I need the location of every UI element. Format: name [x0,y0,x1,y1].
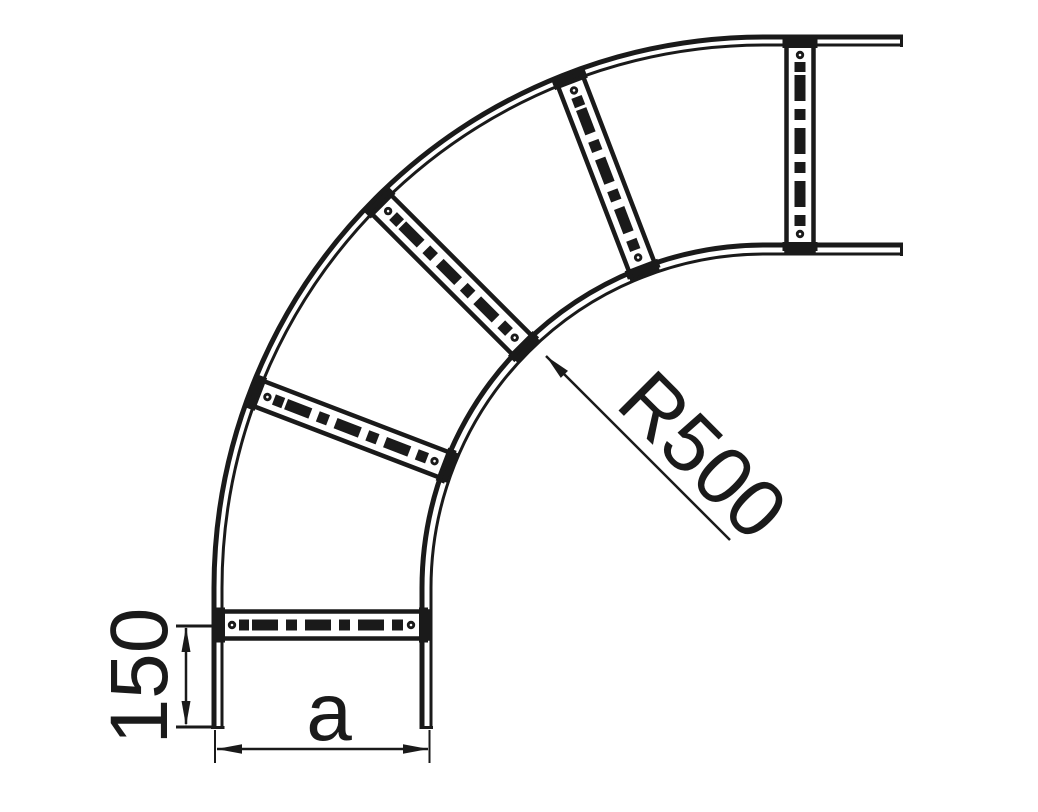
rung-offset-dimension: 150 [94,608,224,745]
rung-offset-dimension-label: 150 [94,608,185,745]
ladder-rung-arc-2 [364,187,539,362]
width-dimension: a [215,667,430,763]
cable-ladder-bend-drawing: R500 150 a [0,0,1038,812]
radius-dimension: R500 [546,354,804,557]
ladder-rung-end-bottom [216,608,428,643]
radius-dimension-label: R500 [601,354,804,557]
ladder-rung-arc-1 [552,69,661,279]
technical-drawing-canvas: R500 150 a [0,0,1038,812]
width-dimension-label: a [306,667,352,758]
ladder-rung-end-right [783,39,818,251]
width-arrowhead-left [217,744,243,754]
ladder-rung-arc-3 [246,375,456,484]
ladder-rungs [216,39,818,643]
width-arrowhead-right [403,744,429,754]
